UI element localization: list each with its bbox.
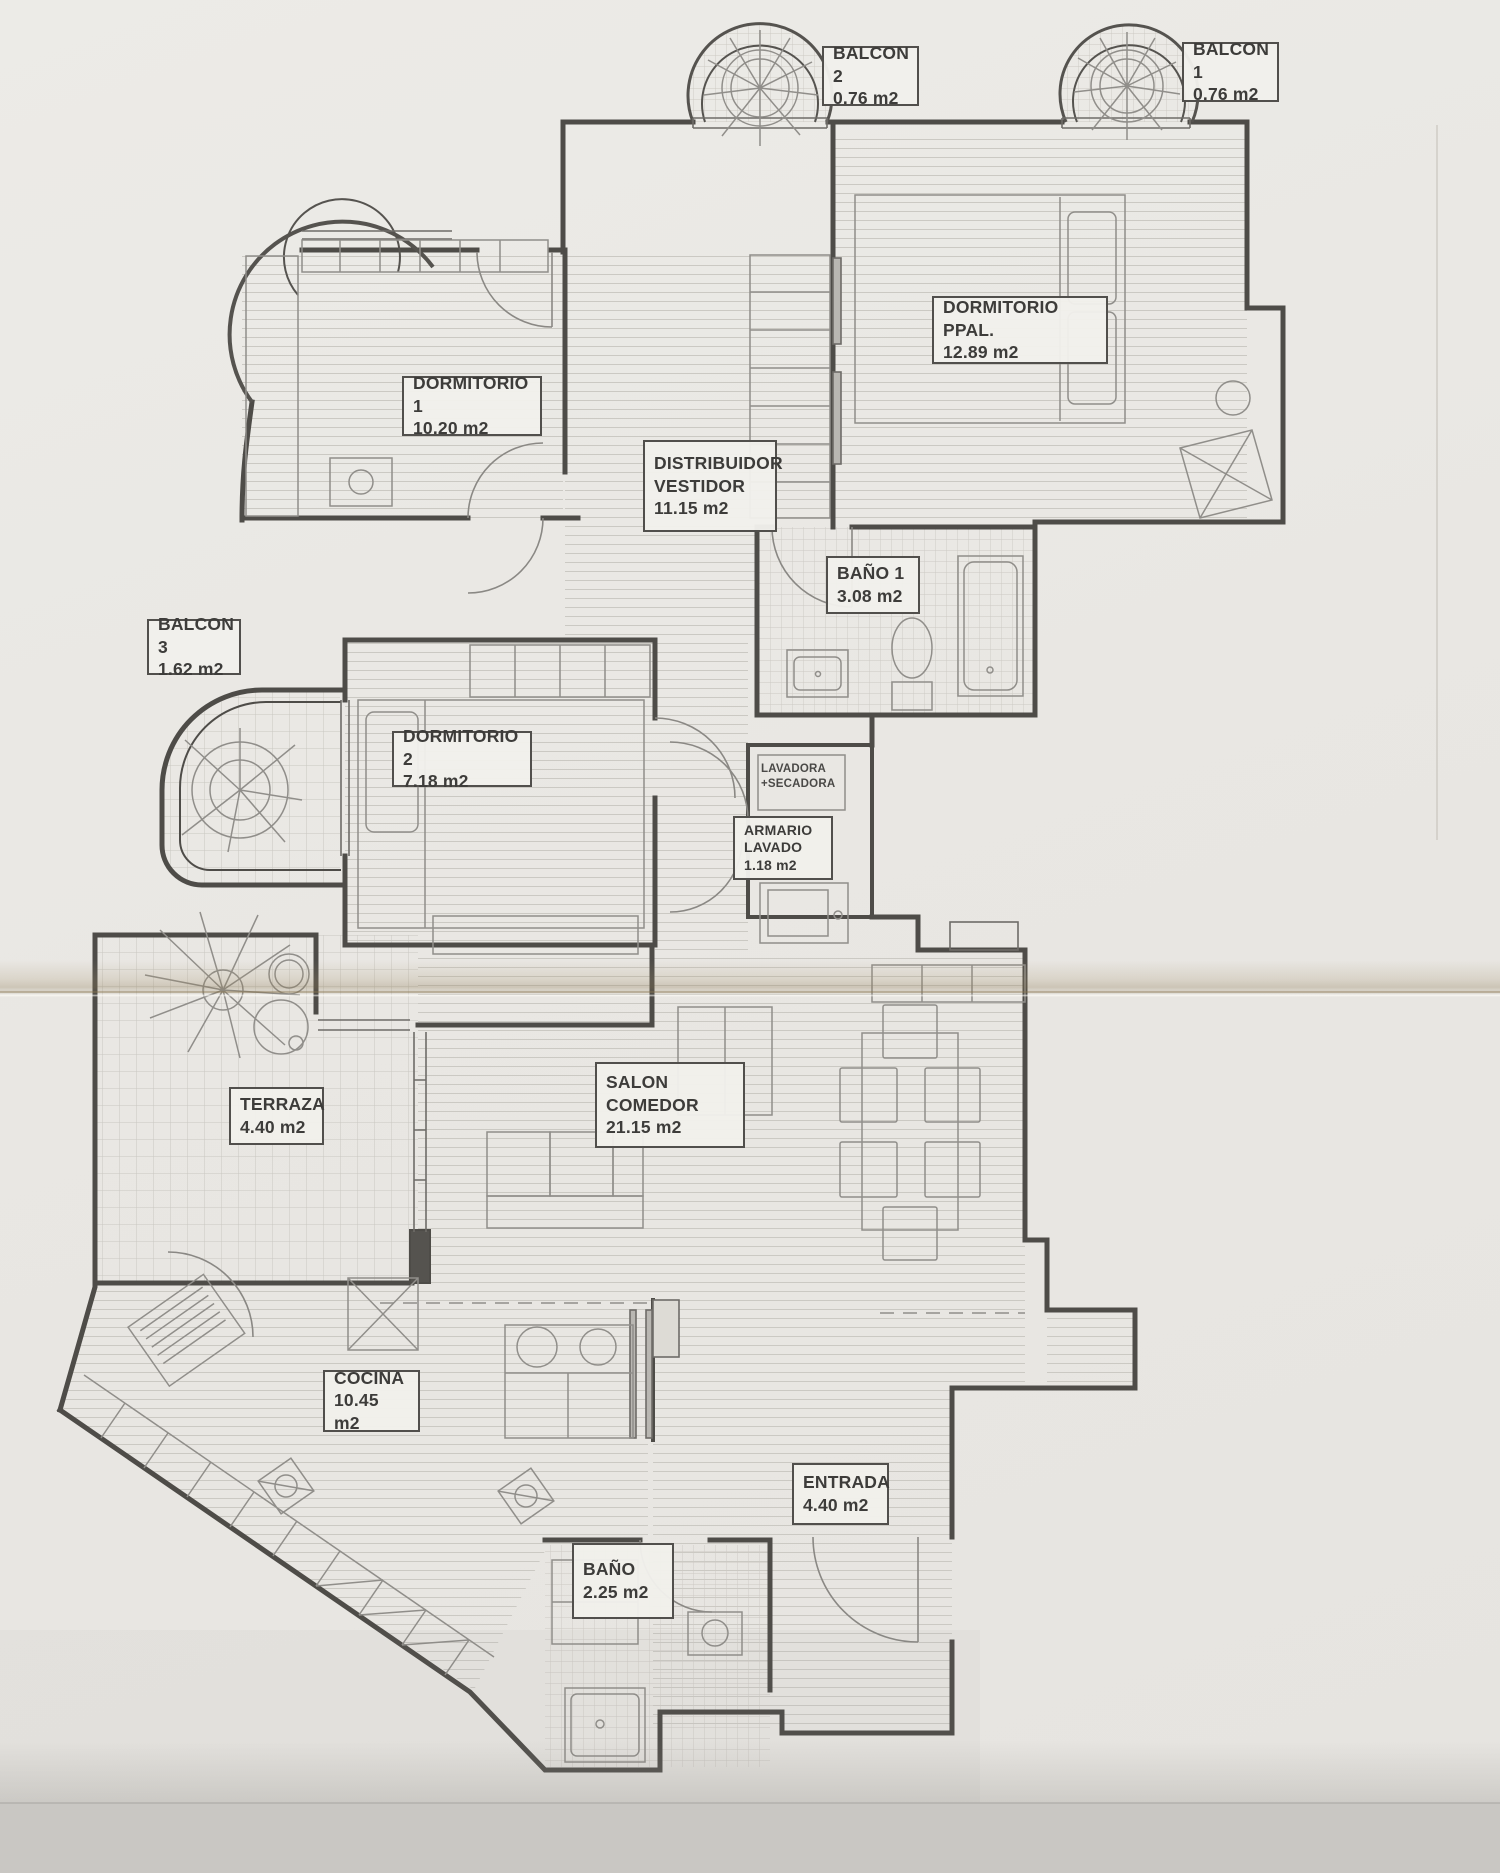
room-area: 0.76 m2 <box>833 87 908 110</box>
room-area: 10.20 m2 <box>413 417 531 440</box>
room-area: 21.15 m2 <box>606 1116 734 1139</box>
label-cocina: COCINA 10.45 m2 <box>323 1370 420 1432</box>
bottom-shadow-band <box>0 1803 1500 1873</box>
room-name: ENTRADA <box>803 1471 878 1493</box>
room-name: DORMITORIO PPAL. <box>943 296 1097 341</box>
label-balcon-3: BALCON 3 1.62 m2 <box>147 619 241 675</box>
room-area: 10.45 m2 <box>334 1389 409 1435</box>
label-dormitorio-ppal: DORMITORIO PPAL. 12.89 m2 <box>932 296 1108 364</box>
label-balcon-1: BALCON 1 0.76 m2 <box>1182 42 1279 102</box>
room-name: BALCON 2 <box>833 42 908 87</box>
room-area: 0.76 m2 <box>1193 83 1268 106</box>
room-area: 1.62 m2 <box>158 658 230 681</box>
room-area: 7.18 m2 <box>403 770 521 793</box>
label-dormitorio-1: DORMITORIO 1 10.20 m2 <box>402 376 542 436</box>
room-name: BAÑO <box>583 1558 663 1580</box>
label-dormitorio-2: DORMITORIO 2 7.18 m2 <box>392 731 532 787</box>
room-area: 2.25 m2 <box>583 1581 663 1604</box>
label-balcon-2: BALCON 2 0.76 m2 <box>822 46 919 106</box>
floor-plan-drawing <box>0 0 1500 1873</box>
label-salon-comedor: SALON COMEDOR 21.15 m2 <box>595 1062 745 1148</box>
label-bano-1: BAÑO 1 3.08 m2 <box>826 556 920 614</box>
room-name: BALCON 3 <box>158 613 230 658</box>
room-name: COCINA <box>334 1367 409 1389</box>
room-name: BALCON 1 <box>1193 38 1268 83</box>
label-armario-lavado: ARMARIO LAVADO 1.18 m2 <box>733 816 833 880</box>
room-area: 12.89 m2 <box>943 341 1097 364</box>
room-name: DORMITORIO 1 <box>413 372 531 417</box>
room-area: 1.18 m2 <box>744 857 822 875</box>
room-area: 11.15 m2 <box>654 497 766 520</box>
floor-plan-photo: BALCON 2 0.76 m2 BALCON 1 0.76 m2 DORMIT… <box>0 0 1500 1873</box>
label-entrada: ENTRADA 4.40 m2 <box>792 1463 889 1525</box>
room-area: 4.40 m2 <box>240 1116 313 1139</box>
room-name: TERRAZA <box>240 1093 313 1115</box>
room-area: 4.40 m2 <box>803 1494 878 1517</box>
room-area: 3.08 m2 <box>837 585 909 608</box>
note-lavadora-secadora: LAVADORA +SECADORA <box>761 762 845 792</box>
room-name: DISTRIBUIDOR VESTIDOR <box>654 452 766 497</box>
label-distribuidor-vestidor: DISTRIBUIDOR VESTIDOR 11.15 m2 <box>643 440 777 532</box>
label-terraza: TERRAZA 4.40 m2 <box>229 1087 324 1145</box>
room-name: SALON COMEDOR <box>606 1071 734 1116</box>
label-bano-2: BAÑO 2.25 m2 <box>572 1543 674 1619</box>
room-name: BAÑO 1 <box>837 562 909 584</box>
room-name: ARMARIO LAVADO <box>744 822 822 857</box>
room-name: DORMITORIO 2 <box>403 725 521 770</box>
